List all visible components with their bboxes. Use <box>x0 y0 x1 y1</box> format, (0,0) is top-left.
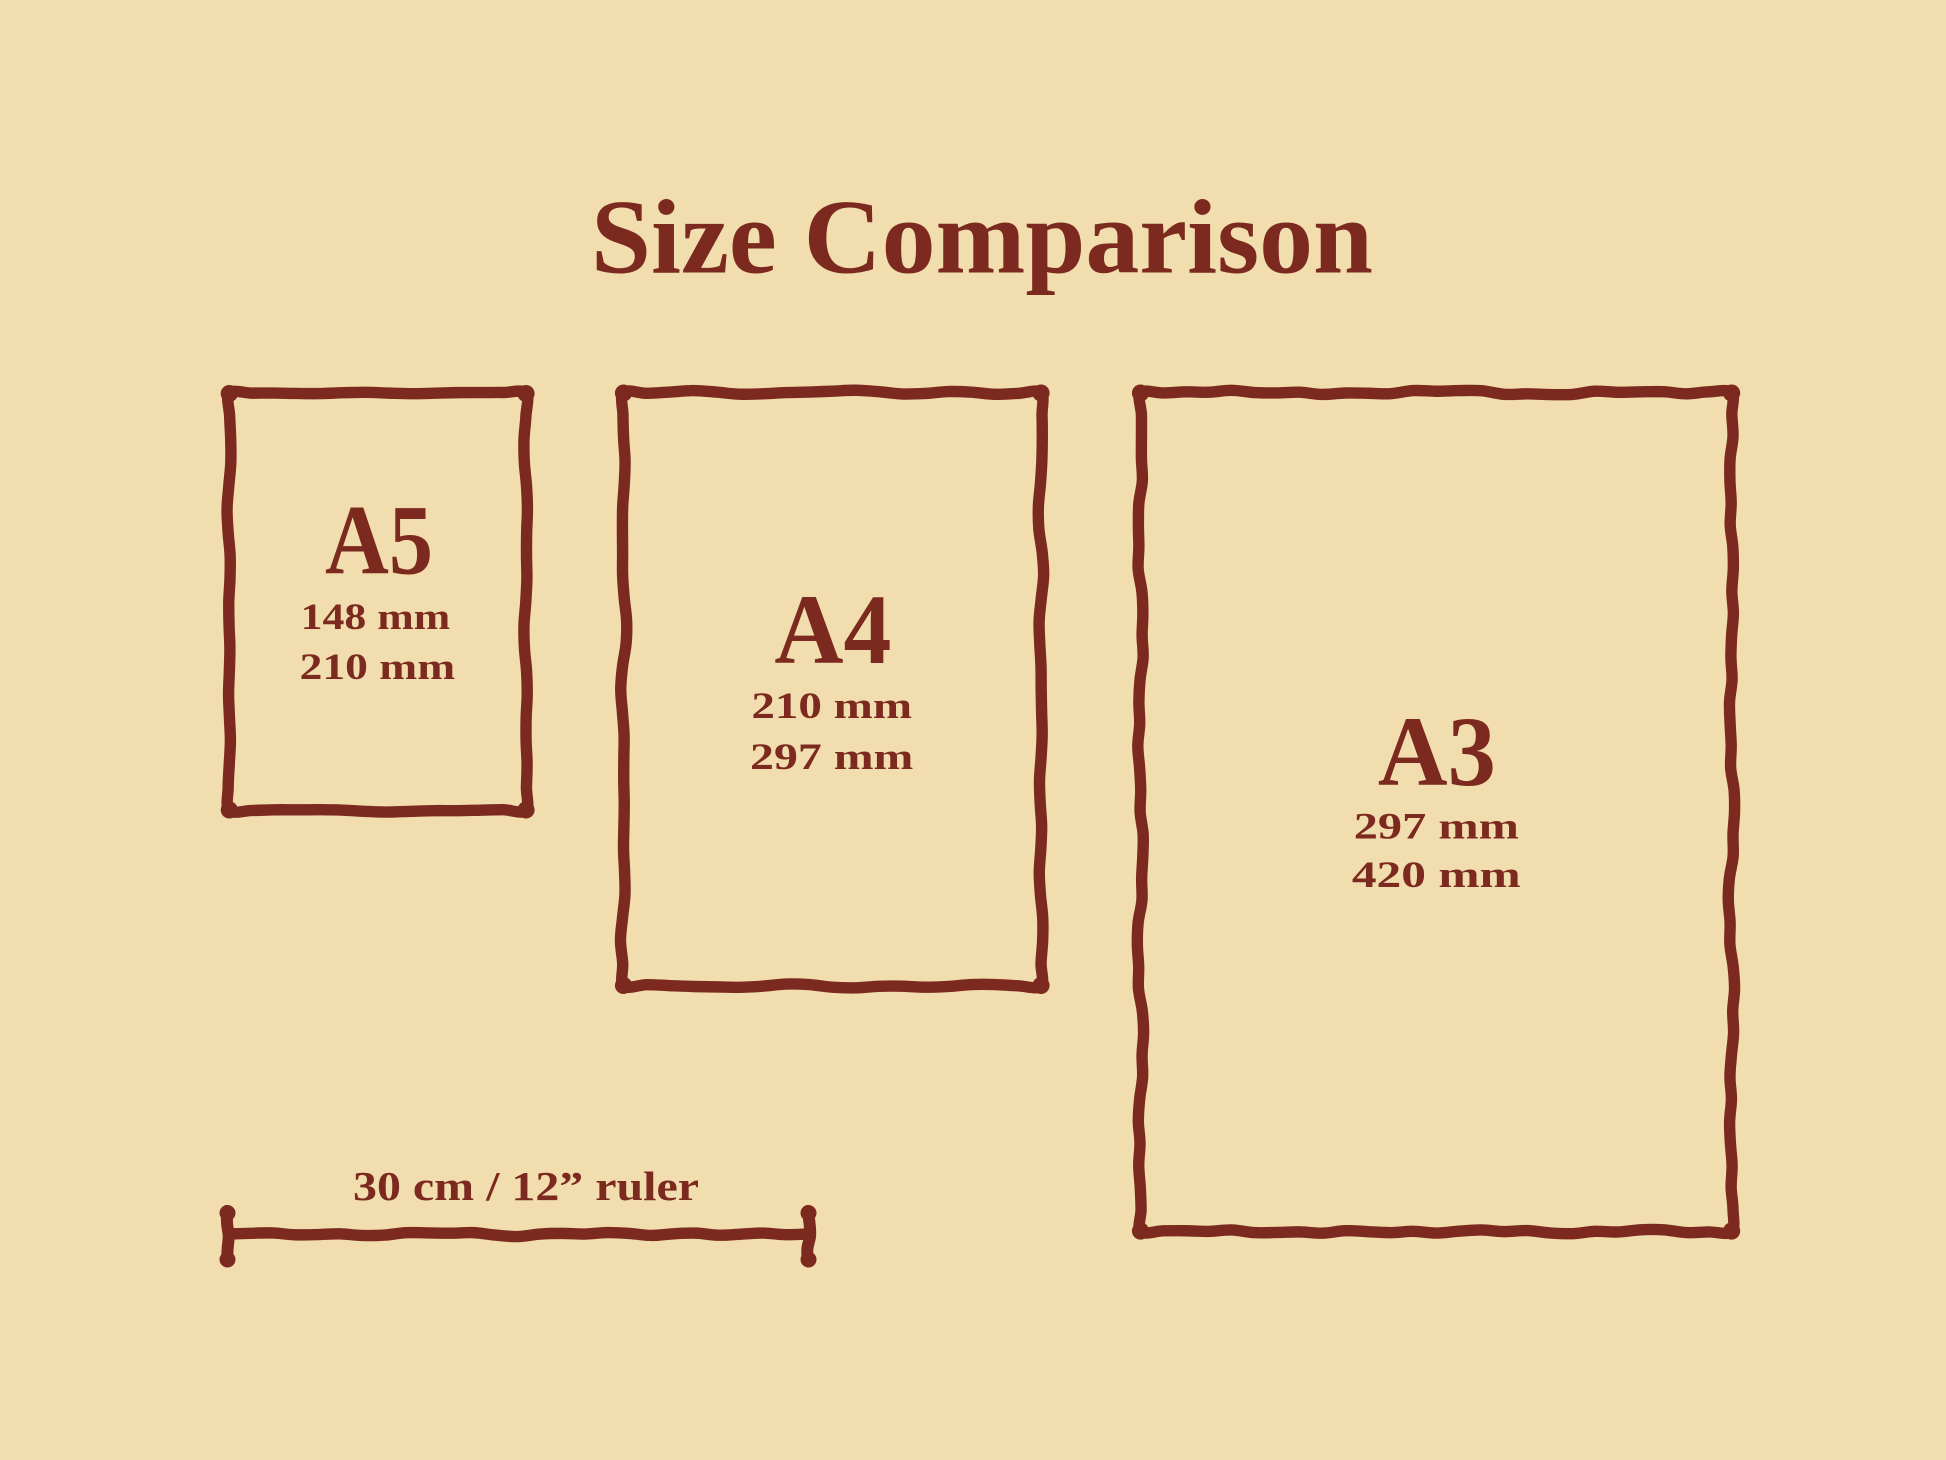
svg-text:148 mm: 148 mm <box>301 597 451 638</box>
svg-text:Size Comparison: Size Comparison <box>591 179 1373 296</box>
svg-text:A5: A5 <box>325 485 433 596</box>
svg-text:30 cm / 12” ruler: 30 cm / 12” ruler <box>353 1163 699 1209</box>
svg-text:210 mm: 210 mm <box>300 647 456 688</box>
svg-text:297 mm: 297 mm <box>1354 807 1519 848</box>
svg-text:210 mm: 210 mm <box>751 686 912 727</box>
svg-text:A4: A4 <box>774 574 891 685</box>
svg-text:A3: A3 <box>1378 696 1496 807</box>
svg-text:420 mm: 420 mm <box>1352 855 1521 896</box>
svg-text:297 mm: 297 mm <box>750 737 914 778</box>
